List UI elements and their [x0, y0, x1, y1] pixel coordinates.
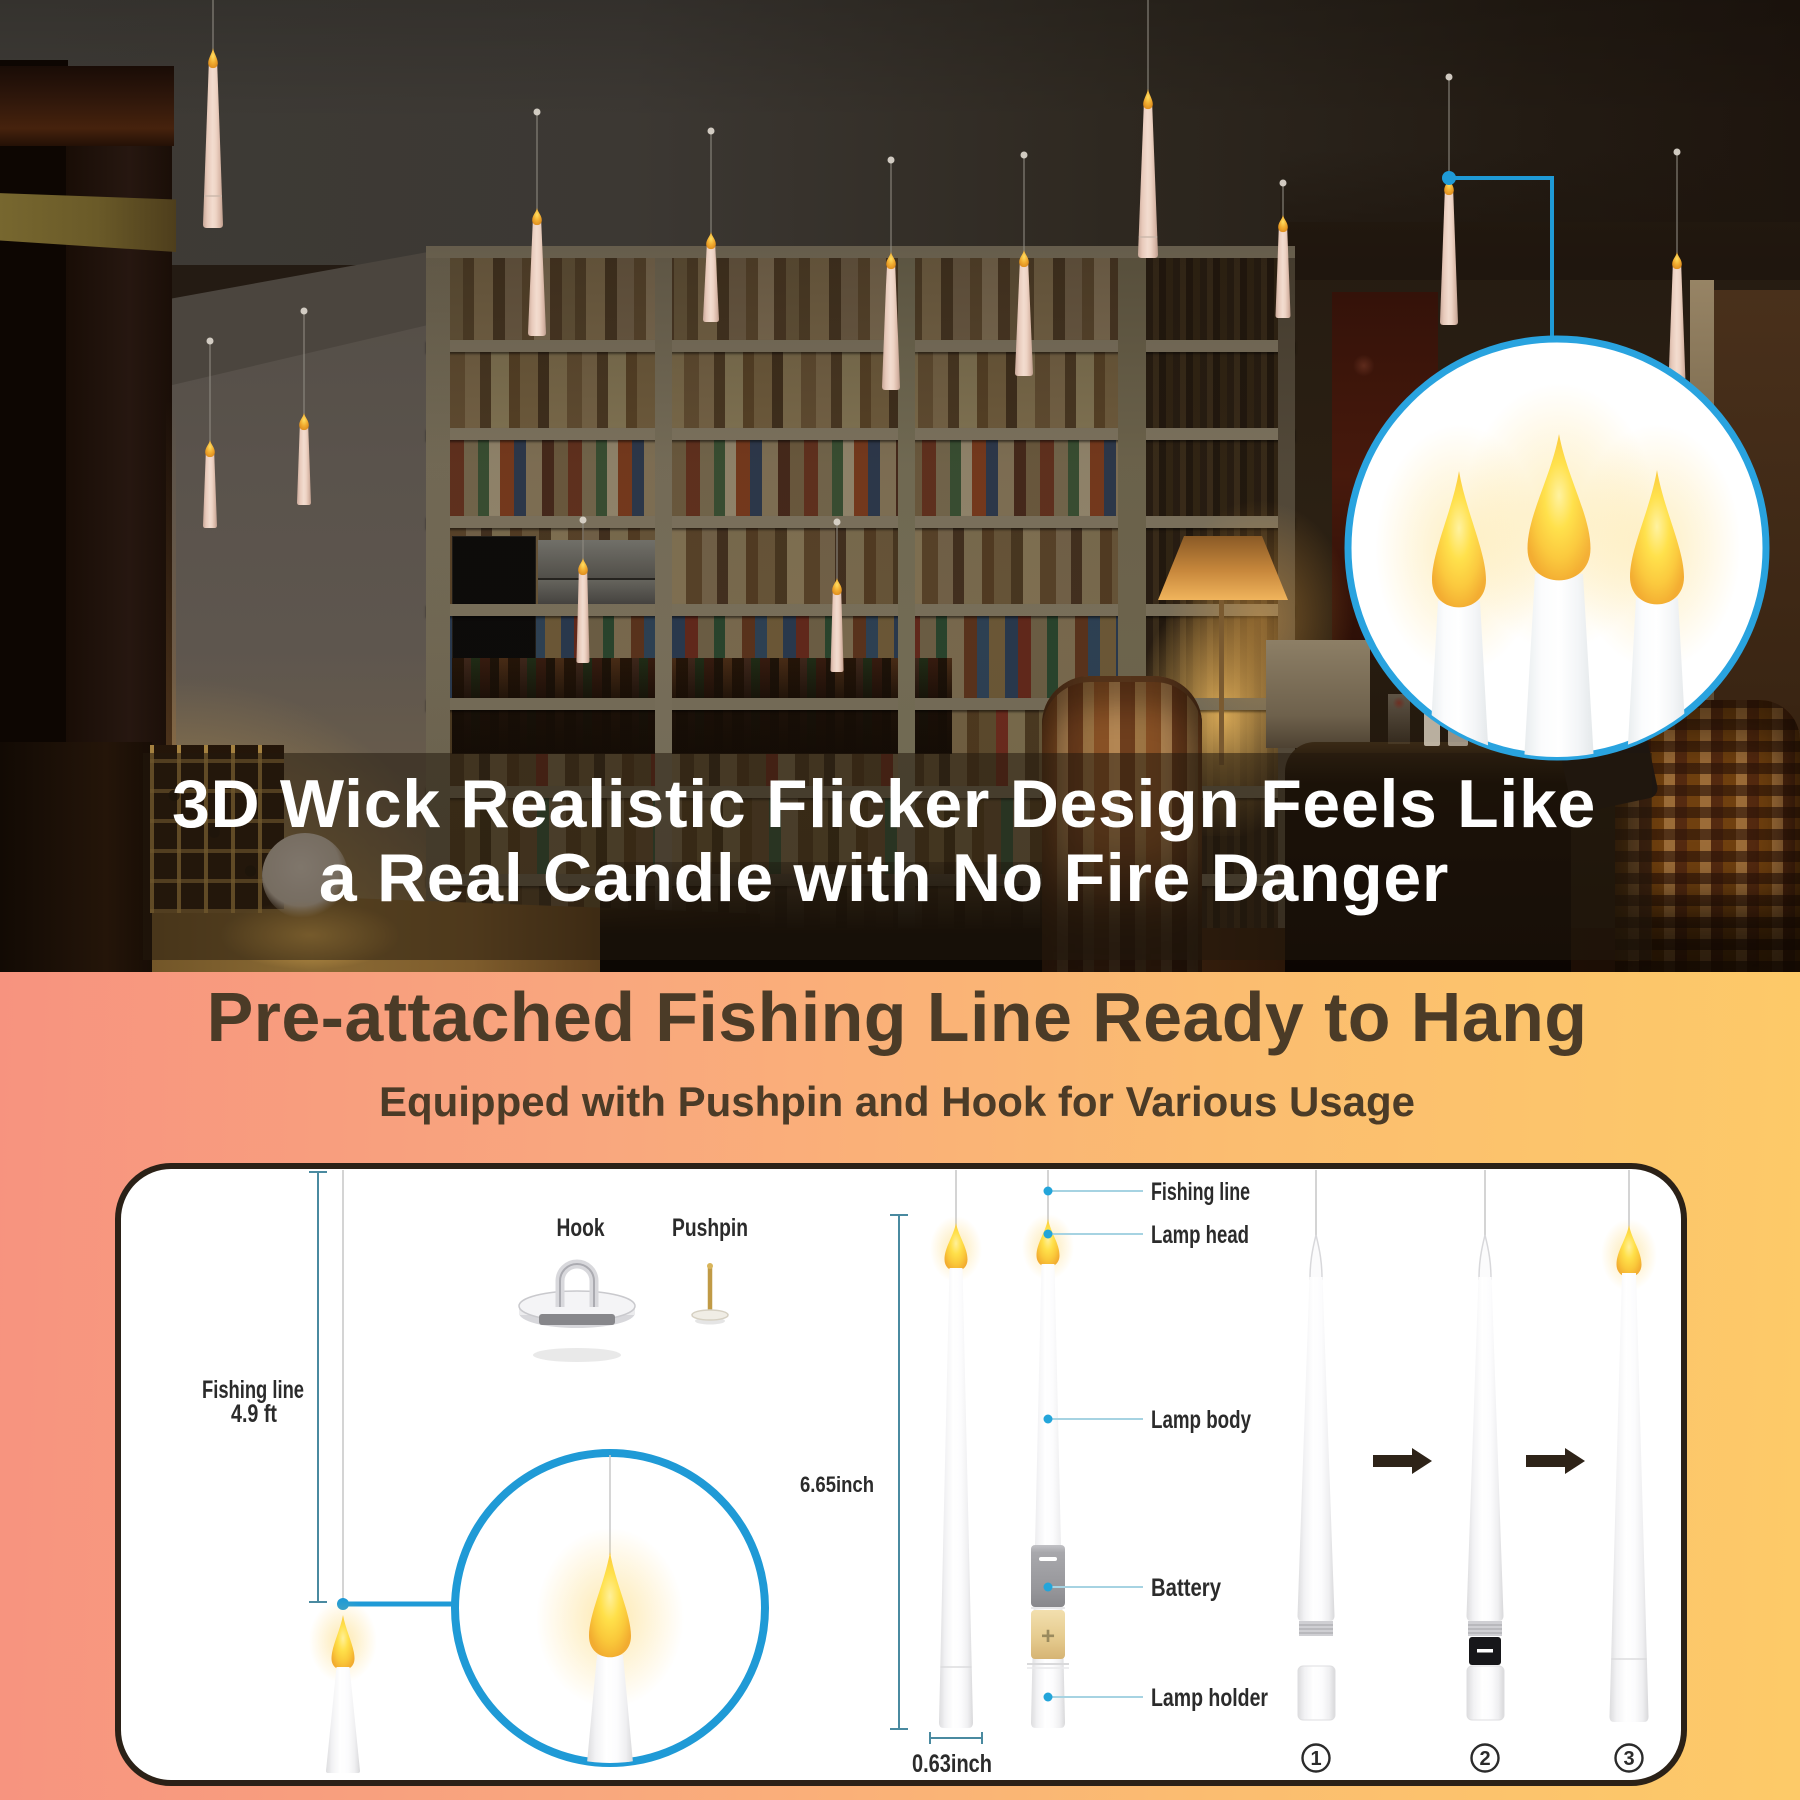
svg-text:6.65inch: 6.65inch [800, 1472, 874, 1497]
svg-text:1: 1 [1310, 1748, 1321, 1770]
svg-text:Lamp holder: Lamp holder [1151, 1684, 1268, 1712]
svg-text:2: 2 [1479, 1748, 1490, 1770]
svg-text:+: + [1041, 1623, 1055, 1650]
svg-text:Fishing line: Fishing line [1151, 1178, 1250, 1206]
svg-text:Lamp body: Lamp body [1151, 1406, 1251, 1434]
svg-text:Hook: Hook [557, 1214, 605, 1242]
svg-text:Lamp head: Lamp head [1151, 1221, 1249, 1249]
svg-text:Pushpin: Pushpin [672, 1214, 748, 1242]
svg-text:0.63inch: 0.63inch [912, 1750, 992, 1778]
svg-text:3: 3 [1623, 1748, 1634, 1770]
svg-text:4.9 ft: 4.9 ft [231, 1400, 278, 1428]
svg-text:Battery: Battery [1151, 1574, 1221, 1602]
